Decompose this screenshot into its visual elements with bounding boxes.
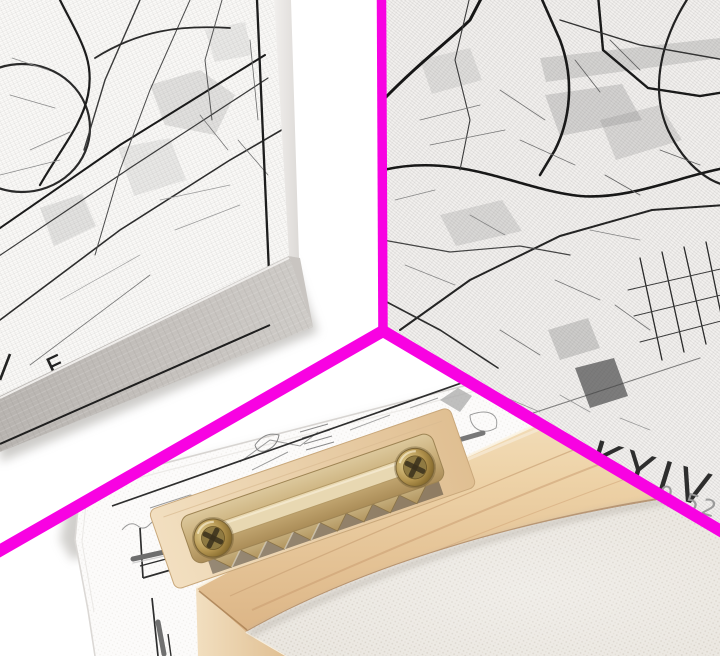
divider-junction <box>377 325 389 337</box>
divider-line-vertical <box>382 0 384 336</box>
collage: E <box>0 0 720 656</box>
collage-canvas: E <box>0 0 720 656</box>
